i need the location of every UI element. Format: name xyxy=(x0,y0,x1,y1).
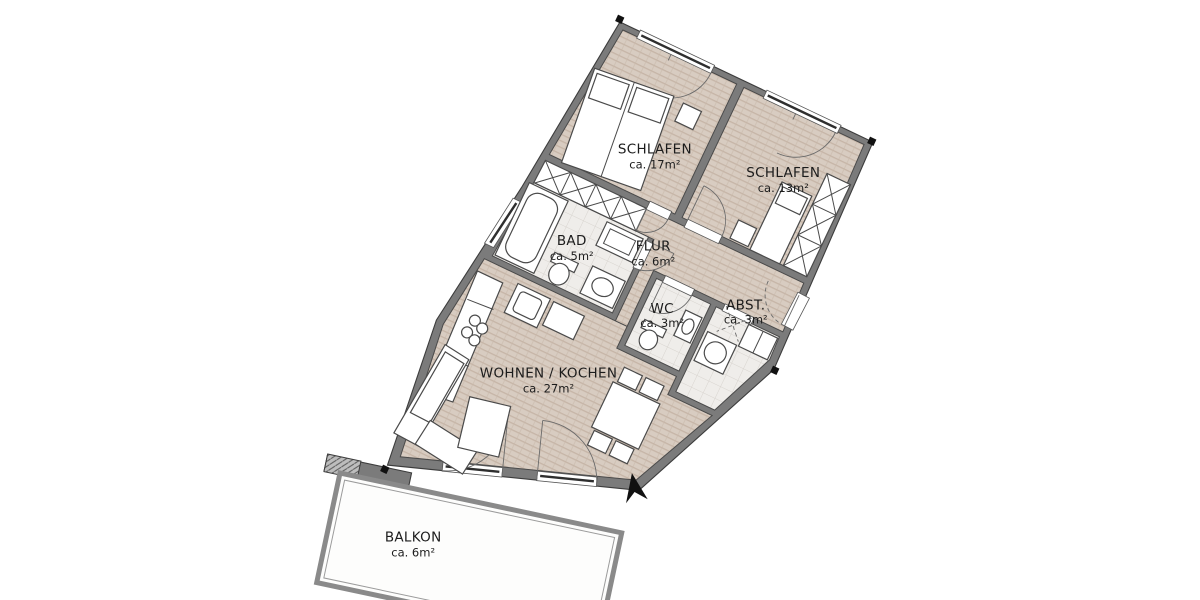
room-label: WC xyxy=(650,301,673,317)
room-area: ca. 3m² xyxy=(640,316,684,330)
room-label: SCHLAFEN xyxy=(746,165,820,181)
room-area: ca. 17m² xyxy=(629,158,680,172)
room-area: ca. 13m² xyxy=(758,181,809,195)
room-area: ca. 6m² xyxy=(631,254,675,268)
room-label: SCHLAFEN xyxy=(618,142,692,158)
room-label: FLUR xyxy=(636,238,671,254)
floorplan-page: { "plan_title": "apartment-floor-plan", … xyxy=(0,0,1200,600)
room-area: ca. 3m² xyxy=(724,313,768,327)
room-label: ABST. xyxy=(726,298,765,314)
room-label: WOHNEN / KOCHEN xyxy=(480,366,617,382)
floorplan-svg: BALKON ca. 6m² xyxy=(0,0,1200,600)
label-abst: ABST. ca. 3m² xyxy=(724,298,768,327)
room-label: BAD xyxy=(557,233,587,249)
room-area: ca. 5m² xyxy=(550,249,594,263)
room-area: ca. 27m² xyxy=(523,382,574,396)
room-area-balkon: ca. 6m² xyxy=(391,546,435,560)
room-label-balkon: BALKON xyxy=(385,530,442,546)
balcony-label: BALKON ca. 6m² xyxy=(385,530,442,560)
label-flur: FLUR ca. 6m² xyxy=(631,238,675,268)
